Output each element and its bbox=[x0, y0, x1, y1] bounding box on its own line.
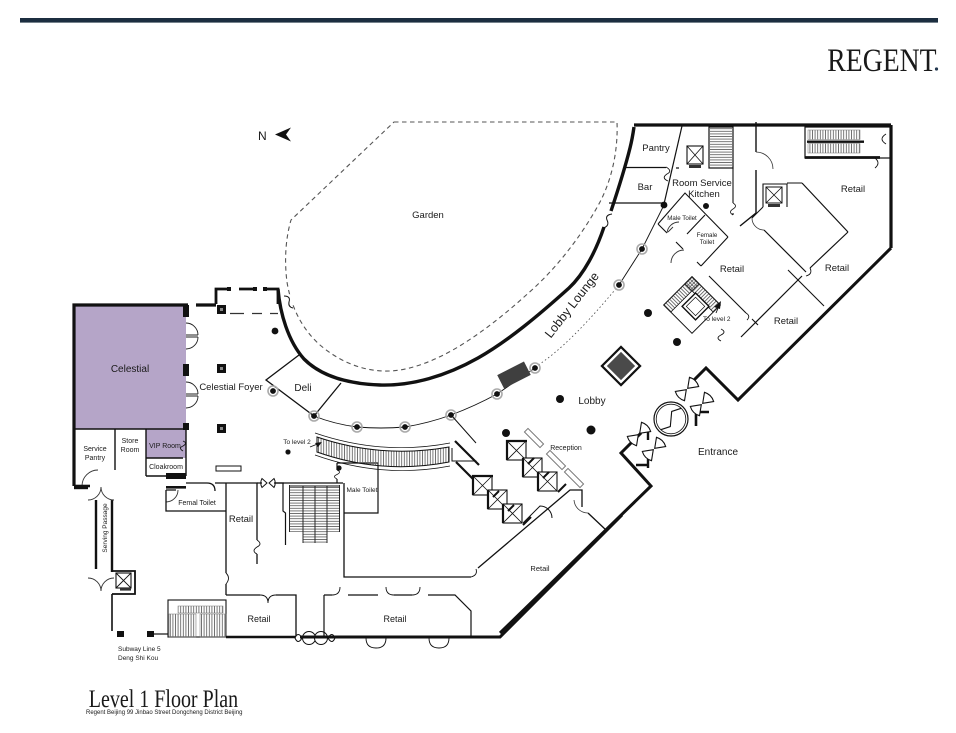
svg-text:Retail: Retail bbox=[774, 316, 798, 327]
svg-text:Cloakroom: Cloakroom bbox=[149, 464, 183, 471]
svg-text:Subway Line 5: Subway Line 5 bbox=[118, 646, 161, 653]
svg-text:Lobby: Lobby bbox=[578, 396, 605, 407]
svg-text:Serving Passage: Serving Passage bbox=[102, 503, 109, 553]
svg-text:Pantry: Pantry bbox=[642, 143, 670, 154]
svg-text:N: N bbox=[258, 129, 267, 143]
svg-text:Female: Female bbox=[697, 232, 718, 239]
svg-text:Retail: Retail bbox=[720, 264, 744, 275]
svg-text:Reception: Reception bbox=[550, 445, 582, 452]
svg-text:Room: Room bbox=[121, 447, 140, 454]
svg-text:To level 2: To level 2 bbox=[283, 439, 311, 446]
svg-text:Retail: Retail bbox=[247, 614, 270, 624]
svg-text:Celestial: Celestial bbox=[111, 364, 149, 375]
svg-text:Pantry: Pantry bbox=[85, 455, 106, 462]
svg-text:To level 2: To level 2 bbox=[703, 316, 731, 323]
svg-text:Kitchen: Kitchen bbox=[688, 189, 720, 200]
svg-text:Retail: Retail bbox=[530, 564, 550, 573]
svg-text:Retail: Retail bbox=[229, 514, 253, 525]
svg-text:Toilet: Toilet bbox=[700, 239, 715, 246]
svg-text:Retail: Retail bbox=[383, 614, 406, 624]
svg-text:Level 1 Floor Plan: Level 1 Floor Plan bbox=[89, 685, 238, 713]
svg-text:Entrance: Entrance bbox=[698, 447, 738, 458]
svg-text:Garden: Garden bbox=[412, 210, 444, 221]
svg-text:Celestial Foyer: Celestial Foyer bbox=[199, 382, 262, 393]
svg-text:Room Service: Room Service bbox=[672, 178, 732, 189]
svg-text:Retail: Retail bbox=[825, 263, 849, 274]
svg-text:Deli: Deli bbox=[294, 383, 311, 394]
svg-text:VIP Room: VIP Room bbox=[149, 443, 181, 450]
svg-text:Bar: Bar bbox=[638, 182, 653, 193]
svg-text:Retail: Retail bbox=[841, 184, 865, 195]
svg-text:Store: Store bbox=[122, 438, 139, 445]
svg-text:Femal Toilet: Femal Toilet bbox=[178, 500, 216, 507]
svg-text:REGENT: REGENT bbox=[827, 42, 937, 79]
svg-text:Deng Shi Kou: Deng Shi Kou bbox=[118, 655, 158, 662]
svg-text:Service: Service bbox=[83, 446, 106, 453]
svg-text:Male Toilet: Male Toilet bbox=[347, 487, 378, 494]
svg-text:Regent Beijing 99 Jinbao Stree: Regent Beijing 99 Jinbao Street Dongchen… bbox=[86, 710, 242, 716]
svg-text:Male Toilet: Male Toilet bbox=[667, 215, 697, 222]
